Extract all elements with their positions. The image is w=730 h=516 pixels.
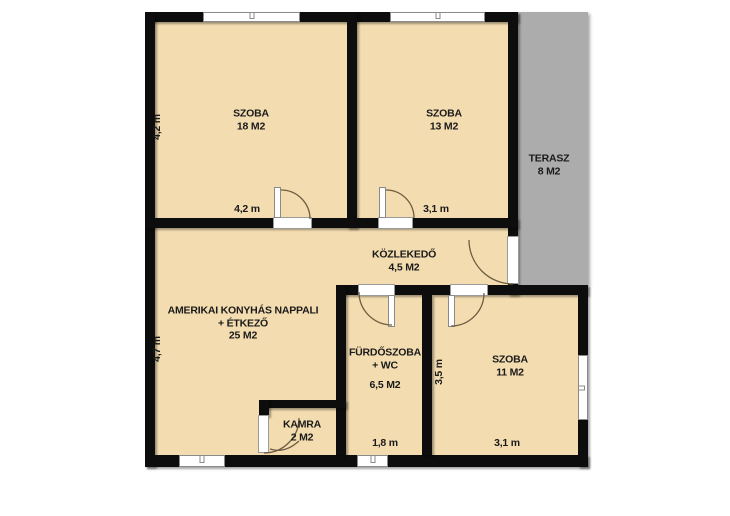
floor-plan: SZOBA 18 M2 SZOBA 13 M2 TERASZ 8 M2 KÖZL… [0,0,730,516]
room-area: 11 M2 [492,366,528,379]
wall-bedroom-divider [347,12,357,228]
window-szoba18-top [203,12,300,22]
door-terasz [507,236,519,284]
room-area: 2 M2 [283,431,321,444]
wall-kamra-stub [259,400,269,416]
room-label-terasz: TERASZ 8 M2 [529,153,570,178]
dimension-szoba18-width: 4,2 m [234,203,260,216]
room-label-szoba11: SZOBA 11 M2 [492,354,528,379]
room-furdoszoba-floor [346,295,422,455]
door-szoba13 [378,217,413,229]
room-name: AMERIKAI KONYHÁS NAPPALI [168,304,319,317]
room-name: SZOBA [426,108,462,121]
door-leaf-szoba18 [274,187,281,218]
room-area: 8 M2 [529,165,570,178]
room-label-szoba18: SZOBA 18 M2 [233,108,269,133]
door-szoba18 [273,217,312,229]
room-hallway-floor [155,228,508,285]
room-name-line2: + WC [349,359,421,372]
room-label-kamra: KAMRA 2 M2 [283,419,321,444]
room-name-line2: + ÉTKEZŐ [168,317,319,330]
wall-middle-horizontal [145,218,518,228]
door-leaf-furdoszoba [388,295,395,327]
window-szoba13-top [390,12,485,22]
room-label-furdoszoba: FÜRDŐSZOBA + WC [349,347,421,372]
dimension-nappali-height: 4,7 m [151,336,164,362]
dimension-furdoszoba-width: 1,8 m [372,437,398,450]
room-area: 25 M2 [168,329,319,342]
door-kamra [258,415,269,453]
wall-kamra-top [259,400,346,408]
door-leaf-szoba13 [379,187,386,218]
door-leaf-szoba11 [448,295,455,327]
room-label-szoba13: SZOBA 13 M2 [426,108,462,133]
room-name: SZOBA [492,354,528,367]
dimension-szoba18-height: 4,2 m [151,114,164,140]
room-name: FÜRDŐSZOBA [349,347,421,360]
dimension-szoba13-width: 3,1 m [423,203,449,216]
room-area: 6,5 M2 [370,379,401,392]
room-name: TERASZ [529,153,570,166]
room-name: KÖZLEKEDŐ [372,249,436,262]
door-szoba11 [450,284,488,296]
room-area: 18 M2 [233,120,269,133]
room-name: SZOBA [233,108,269,121]
dimension-szoba11-width: 3,1 m [494,437,520,450]
room-label-nappali: AMERIKAI KONYHÁS NAPPALI + ÉTKEZŐ 25 M2 [168,304,319,342]
room-area-furdoszoba: 6,5 M2 [370,379,401,392]
terrace-slab [518,12,588,285]
room-area: 13 M2 [426,120,462,133]
dimension-szoba11-height: 3,5 m [433,359,446,385]
wall-bathroom-right [422,295,432,455]
room-area: 4,5 M2 [372,261,436,274]
wall-outer-left [145,12,155,467]
room-name: KAMRA [283,419,321,432]
window-szoba11-right [578,355,588,420]
wall-bathroom-left [336,285,346,455]
room-label-kozlekedo: KÖZLEKEDŐ 4,5 M2 [372,249,436,274]
window-nappali-bottom [179,455,225,467]
window-furdoszoba-bottom [357,455,388,467]
